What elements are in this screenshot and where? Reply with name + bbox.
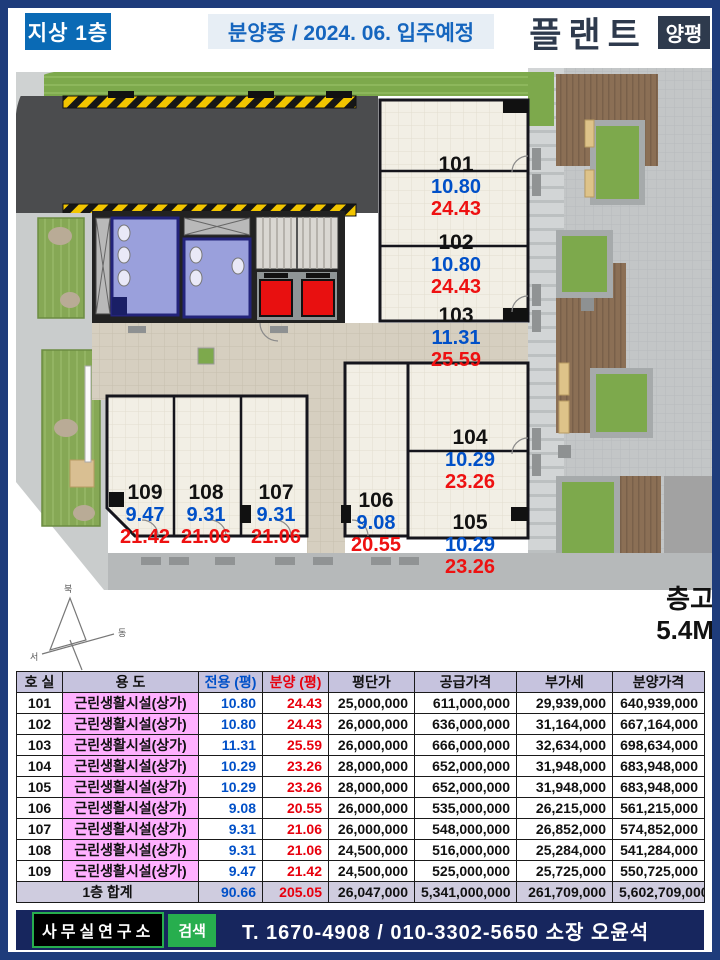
compass-north-label: 북 xyxy=(64,584,72,594)
table-cell: 31,164,000 xyxy=(517,714,613,735)
table-cell: 32,634,000 xyxy=(517,735,613,756)
table-header-cell: 호 실 xyxy=(17,672,63,693)
table-cell: 26,047,000 xyxy=(329,882,415,903)
table-cell: 10.80 xyxy=(199,714,263,735)
table-cell: 107 xyxy=(17,819,63,840)
table-cell: 683,948,000 xyxy=(613,777,705,798)
table-cell: 25.59 xyxy=(263,735,329,756)
table-cell: 90.66 xyxy=(199,882,263,903)
table-cell: 23.26 xyxy=(263,777,329,798)
table-row: 102근린생활시설(상가)10.8024.4326,000,000636,000… xyxy=(17,714,705,735)
brand-location-badge: 양평 xyxy=(658,16,710,49)
table-header-cell: 공급가격 xyxy=(415,672,517,693)
price-table-body: 101근린생활시설(상가)10.8024.4325,000,000611,000… xyxy=(17,693,705,903)
contact-info: T. 1670-4908 / 010-3302-5650 소장 오윤석 xyxy=(242,916,649,945)
table-cell: 261,709,000 xyxy=(517,882,613,903)
search-button[interactable]: 검색 xyxy=(168,914,216,947)
units-104-105 xyxy=(408,363,528,538)
ceiling-height-label: 층고 xyxy=(628,584,714,615)
table-cell: 31,948,000 xyxy=(517,777,613,798)
table-row: 103근린생활시설(상가)11.3125.5926,000,000666,000… xyxy=(17,735,705,756)
floor-badge: 지상 1층 xyxy=(25,13,111,50)
restroom-women xyxy=(112,218,178,315)
compass-rose: 북 동 서 남 xyxy=(26,580,136,680)
table-cell: 5,341,000,000 xyxy=(415,882,517,903)
footer-bar: 사무실연구소 검색 T. 1670-4908 / 010-3302-5650 소… xyxy=(16,910,704,950)
table-cell: 근린생활시설(상가) xyxy=(63,756,199,777)
table-cell: 26,852,000 xyxy=(517,819,613,840)
price-table-head: 호 실용 도전용 (평)분양 (평)평단가공급가격부가세분양가격 xyxy=(17,672,705,693)
table-cell: 26,000,000 xyxy=(329,819,415,840)
table-cell: 666,000,000 xyxy=(415,735,517,756)
table-cell: 9.31 xyxy=(199,840,263,861)
table-total-row: 1층 합계90.66205.0526,047,0005,341,000,0002… xyxy=(17,882,705,903)
price-table: 호 실용 도전용 (평)분양 (평)평단가공급가격부가세분양가격 101근린생활… xyxy=(16,671,705,903)
table-cell: 21.06 xyxy=(263,840,329,861)
table-cell: 102 xyxy=(17,714,63,735)
table-cell: 9.08 xyxy=(199,798,263,819)
table-row: 105근린생활시설(상가)10.2923.2628,000,000652,000… xyxy=(17,777,705,798)
table-cell: 548,000,000 xyxy=(415,819,517,840)
table-cell: 24,500,000 xyxy=(329,840,415,861)
table-cell: 550,725,000 xyxy=(613,861,705,882)
table-header-cell: 분양가격 xyxy=(613,672,705,693)
table-cell: 10.29 xyxy=(199,777,263,798)
unit-106 xyxy=(341,363,408,536)
table-cell: 652,000,000 xyxy=(415,777,517,798)
table-row: 108근린생활시설(상가)9.3121.0624,500,000516,000,… xyxy=(17,840,705,861)
table-cell: 근린생활시설(상가) xyxy=(63,777,199,798)
elevators xyxy=(256,271,338,321)
table-cell: 근린생활시설(상가) xyxy=(63,693,199,714)
table-cell: 535,000,000 xyxy=(415,798,517,819)
table-cell: 28,000,000 xyxy=(329,777,415,798)
table-cell: 667,164,000 xyxy=(613,714,705,735)
table-cell: 31,948,000 xyxy=(517,756,613,777)
table-cell: 25,284,000 xyxy=(517,840,613,861)
ceiling-height-value: 5.4M xyxy=(628,615,714,646)
table-cell: 근린생활시설(상가) xyxy=(63,840,199,861)
table-cell: 9.31 xyxy=(199,819,263,840)
table-cell: 21.42 xyxy=(263,861,329,882)
table-cell: 23.26 xyxy=(263,756,329,777)
table-cell: 10.80 xyxy=(199,693,263,714)
table-cell: 103 xyxy=(17,735,63,756)
table-cell: 근린생활시설(상가) xyxy=(63,861,199,882)
table-cell: 24.43 xyxy=(263,714,329,735)
table-cell: 574,852,000 xyxy=(613,819,705,840)
table-cell: 106 xyxy=(17,798,63,819)
compass-east-label: 동 xyxy=(118,628,126,638)
table-cell: 105 xyxy=(17,777,63,798)
table-header-row: 호 실용 도전용 (평)분양 (평)평단가공급가격부가세분양가격 xyxy=(17,672,705,693)
plaza-area xyxy=(528,68,713,590)
units-101-103 xyxy=(380,100,528,321)
table-cell: 근린생활시설(상가) xyxy=(63,735,199,756)
table-cell: 26,215,000 xyxy=(517,798,613,819)
table-cell: 26,000,000 xyxy=(329,798,415,819)
table-cell: 10.29 xyxy=(199,756,263,777)
table-header-cell: 용 도 xyxy=(63,672,199,693)
table-cell: 108 xyxy=(17,840,63,861)
flyer-page: 지상 1층 분양중 / 2024. 06. 입주예정 플랜트 양평 xyxy=(0,0,720,960)
table-cell: 근린생활시설(상가) xyxy=(63,714,199,735)
table-cell: 516,000,000 xyxy=(415,840,517,861)
table-cell: 698,634,000 xyxy=(613,735,705,756)
table-cell: 683,948,000 xyxy=(613,756,705,777)
restroom-men xyxy=(184,218,250,317)
table-cell: 24,500,000 xyxy=(329,861,415,882)
table-cell: 541,284,000 xyxy=(613,840,705,861)
building-core xyxy=(92,211,345,323)
floor-plan xyxy=(8,60,720,660)
company-name-box: 사무실연구소 xyxy=(32,912,164,948)
table-row: 101근린생활시설(상가)10.8024.4325,000,000611,000… xyxy=(17,693,705,714)
table-cell: 640,939,000 xyxy=(613,693,705,714)
table-cell: 101 xyxy=(17,693,63,714)
table-cell: 25,000,000 xyxy=(329,693,415,714)
table-cell: 525,000,000 xyxy=(415,861,517,882)
table-cell: 20.55 xyxy=(263,798,329,819)
table-row: 104근린생활시설(상가)10.2923.2628,000,000652,000… xyxy=(17,756,705,777)
stairwell xyxy=(256,217,338,269)
table-cell: 5,602,709,000 xyxy=(613,882,705,903)
table-cell: 24.43 xyxy=(263,693,329,714)
table-cell: 21.06 xyxy=(263,819,329,840)
sale-status-label: 분양중 / 2024. 06. 입주예정 xyxy=(208,14,494,49)
table-cell: 근린생활시설(상가) xyxy=(63,819,199,840)
table-cell: 561,215,000 xyxy=(613,798,705,819)
table-header-cell: 분양 (평) xyxy=(263,672,329,693)
table-header-cell: 부가세 xyxy=(517,672,613,693)
table-total-label: 1층 합계 xyxy=(17,882,199,903)
table-header-cell: 전용 (평) xyxy=(199,672,263,693)
ceiling-height-note: 층고 5.4M xyxy=(628,584,714,646)
table-cell: 11.31 xyxy=(199,735,263,756)
table-cell: 25,725,000 xyxy=(517,861,613,882)
table-cell: 104 xyxy=(17,756,63,777)
table-cell: 611,000,000 xyxy=(415,693,517,714)
table-cell: 9.47 xyxy=(199,861,263,882)
table-cell: 636,000,000 xyxy=(415,714,517,735)
table-cell: 26,000,000 xyxy=(329,714,415,735)
table-row: 109근린생활시설(상가)9.4721.4224,500,000525,000,… xyxy=(17,861,705,882)
table-cell: 29,939,000 xyxy=(517,693,613,714)
table-header-cell: 평단가 xyxy=(329,672,415,693)
table-cell: 205.05 xyxy=(263,882,329,903)
table-row: 107근린생활시설(상가)9.3121.0626,000,000548,000,… xyxy=(17,819,705,840)
compass-west-label: 서 xyxy=(30,652,38,662)
table-row: 106근린생활시설(상가)9.0820.5526,000,000535,000,… xyxy=(17,798,705,819)
table-cell: 28,000,000 xyxy=(329,756,415,777)
table-cell: 근린생활시설(상가) xyxy=(63,798,199,819)
units-107-109 xyxy=(107,396,307,536)
brand-title: 플랜트 xyxy=(518,8,658,56)
table-cell: 26,000,000 xyxy=(329,735,415,756)
table-cell: 652,000,000 xyxy=(415,756,517,777)
table-cell: 109 xyxy=(17,861,63,882)
